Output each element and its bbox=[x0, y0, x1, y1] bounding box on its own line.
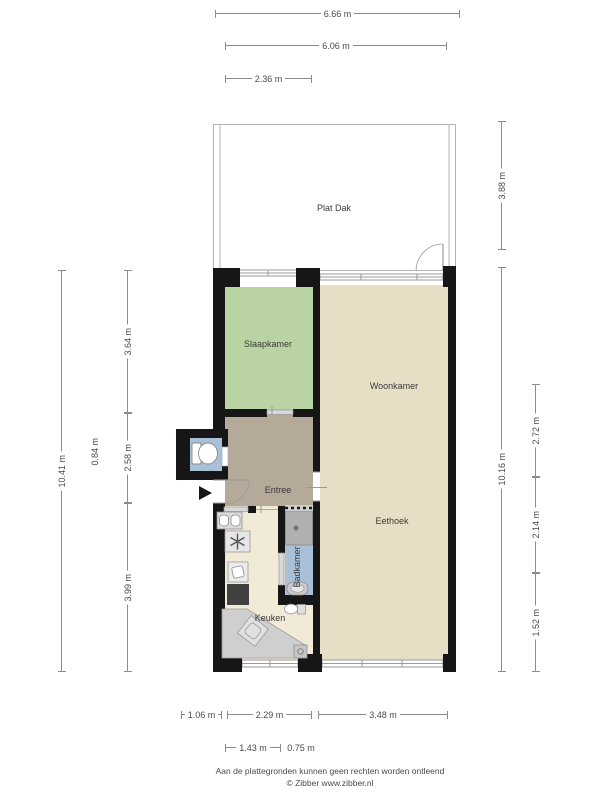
woonkamer-floor bbox=[318, 285, 448, 661]
room-label-slaapkamer: Slaapkamer bbox=[244, 339, 292, 349]
dimension-right-272: 2.72 m bbox=[530, 384, 542, 477]
dimension-top-236: 2.36 m bbox=[225, 73, 312, 85]
footer-credit: © Zibber www.zibber.nl bbox=[286, 778, 373, 788]
dimension-right-388: 3.88 m bbox=[496, 121, 508, 250]
dimension-bottom-348: 3.48 m bbox=[318, 709, 448, 721]
dark-cabinet bbox=[227, 584, 249, 605]
shower-glass-wall bbox=[285, 505, 313, 511]
small-basin-icon bbox=[285, 604, 306, 614]
dimension-top-666: 6.66 m bbox=[215, 8, 460, 20]
shower-icon bbox=[286, 511, 313, 545]
footer-disclaimer: Aan de plattegronden kunnen geen rechten… bbox=[216, 766, 445, 776]
room-label-keuken: Keuken bbox=[255, 613, 286, 623]
floorplan-canvas: Plat Dak Slaapkamer Woonkamer Entree Eet… bbox=[0, 0, 600, 800]
dimension-bottom-075: 0.75 m bbox=[283, 742, 319, 754]
dimension-left-399: 3.99 m bbox=[122, 503, 134, 672]
room-label-entree: Entree bbox=[265, 485, 292, 495]
dimension-bottom-229: 2.29 m bbox=[227, 709, 312, 721]
room-label-woonkamer: Woonkamer bbox=[370, 381, 418, 391]
boiler-star-icon bbox=[225, 531, 250, 552]
room-label-badkamer: Badkamer bbox=[292, 546, 302, 587]
entrance-arrow-icon bbox=[199, 486, 212, 500]
dimension-bottom-143: 1.43 m bbox=[225, 742, 281, 754]
dimension-top-606: 6.06 m bbox=[225, 40, 447, 52]
plat-dak-outline bbox=[214, 125, 456, 271]
dimension-right-1016: 10.16 m bbox=[496, 267, 508, 672]
dimension-left-258: 2.58 m bbox=[122, 413, 134, 503]
room-label-eethoek: Eethoek bbox=[375, 516, 408, 526]
washbasin-icon bbox=[217, 512, 242, 529]
toilet-icon bbox=[192, 443, 218, 464]
dimension-left-084: 0.84 m bbox=[89, 420, 101, 484]
dimension-right-214: 2.14 m bbox=[530, 477, 542, 573]
slaapkamer-floor bbox=[225, 287, 313, 411]
dimension-left-1041: 10.41 m bbox=[56, 270, 68, 672]
dimension-bottom-106: 1.06 m bbox=[181, 709, 222, 721]
room-label-plat-dak: Plat Dak bbox=[317, 203, 351, 213]
dimension-left-364: 3.64 m bbox=[122, 270, 134, 413]
sink-unit-icon bbox=[228, 562, 248, 582]
floorplan-drawing bbox=[0, 0, 600, 800]
dimension-right-152: 1.52 m bbox=[530, 573, 542, 672]
